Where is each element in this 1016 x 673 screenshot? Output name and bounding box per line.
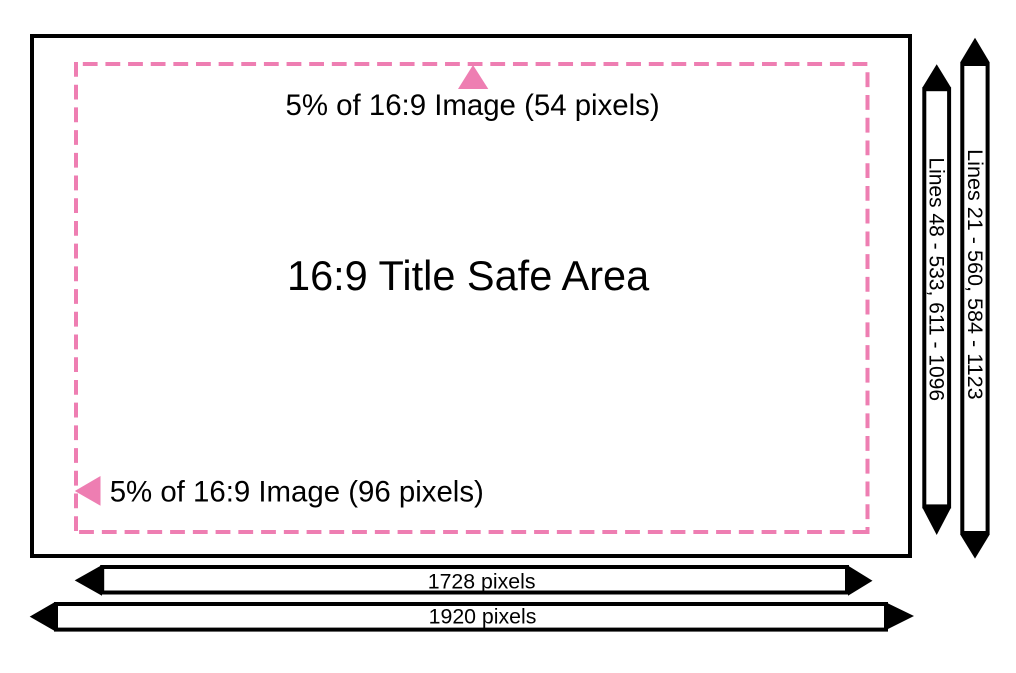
- svg-text:5% of 16:9 Image (96 pixels): 5% of 16:9 Image (96 pixels): [110, 475, 484, 508]
- svg-text:5% of 16:9 Image (54 pixels): 5% of 16:9 Image (54 pixels): [286, 89, 660, 122]
- svg-text:1728 pixels: 1728 pixels: [428, 569, 536, 593]
- svg-text:Lines 48 - 533, 611 - 1096: Lines 48 - 533, 611 - 1096: [925, 157, 948, 401]
- svg-text:1920 pixels: 1920 pixels: [429, 604, 537, 628]
- svg-text:16:9 Title Safe Area: 16:9 Title Safe Area: [287, 252, 650, 299]
- svg-text:Lines 21 - 560, 584 - 1123: Lines 21 - 560, 584 - 1123: [963, 149, 988, 400]
